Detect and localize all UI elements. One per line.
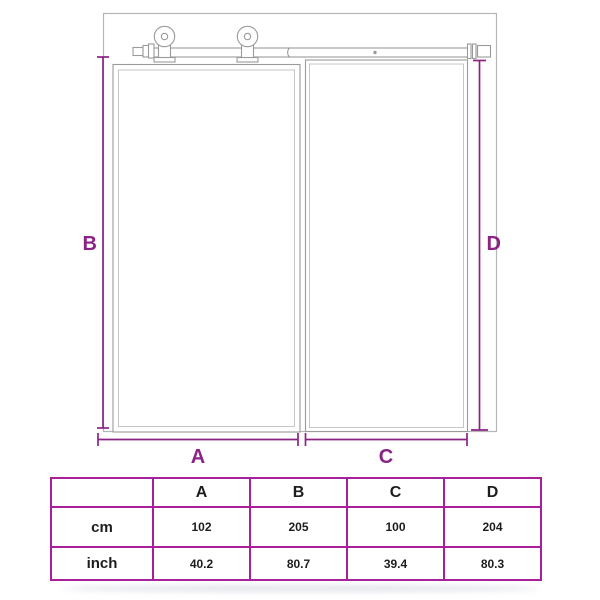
fixed-panel-outer [306, 60, 468, 432]
dim-label-b: B [83, 233, 97, 255]
table-corner-cell [51, 478, 153, 507]
cell-cm-c: 100 [347, 507, 444, 547]
sliding-door [113, 65, 300, 433]
dimension-C: C [306, 433, 468, 468]
rail-right-bracket-1 [468, 44, 472, 59]
dim-label-a: A [191, 446, 205, 468]
cell-inch-c: 39.4 [347, 547, 444, 580]
rail-screw [373, 51, 376, 54]
dimension-A: A [98, 433, 298, 468]
rail-left-cap-small [133, 48, 143, 56]
col-header-c: C [347, 478, 444, 507]
row-label-inch: inch [51, 547, 153, 580]
row-label-cm: cm [51, 507, 153, 547]
fixed-panel [306, 60, 468, 432]
roller-hub [244, 33, 250, 39]
rail-right-end-cap [478, 46, 491, 58]
table-header-row: A B C D [51, 478, 541, 507]
cell-cm-d: 204 [444, 507, 541, 547]
rail-bar [152, 48, 468, 57]
cell-cm-a: 102 [153, 507, 250, 547]
cell-inch-b: 80.7 [250, 547, 347, 580]
dim-label-d: D [487, 233, 501, 255]
col-header-b: B [250, 478, 347, 507]
slide-rail [133, 44, 491, 59]
col-header-d: D [444, 478, 541, 507]
roller-foot-plate [237, 58, 258, 63]
table-shadow [62, 585, 540, 592]
cell-inch-a: 40.2 [153, 547, 250, 580]
sliding-door-diagram: B D A C [0, 0, 600, 470]
table-row-cm: cm 102 205 100 204 [51, 507, 541, 547]
rail-left-cap-large [149, 44, 155, 58]
table-row-inch: inch 40.2 80.7 39.4 80.3 [51, 547, 541, 580]
roller-foot-plate [154, 58, 175, 63]
dimensions-table: A B C D cm 102 205 100 204 inch 40.2 80.… [50, 477, 542, 581]
roller-hub [161, 33, 167, 39]
cell-inch-d: 80.3 [444, 547, 541, 580]
rail-right-bracket-2 [473, 44, 477, 59]
col-header-a: A [153, 478, 250, 507]
dim-label-c: C [379, 446, 393, 468]
dimension-B: B [83, 57, 109, 428]
cell-cm-b: 205 [250, 507, 347, 547]
sliding-door-outer [113, 65, 300, 433]
